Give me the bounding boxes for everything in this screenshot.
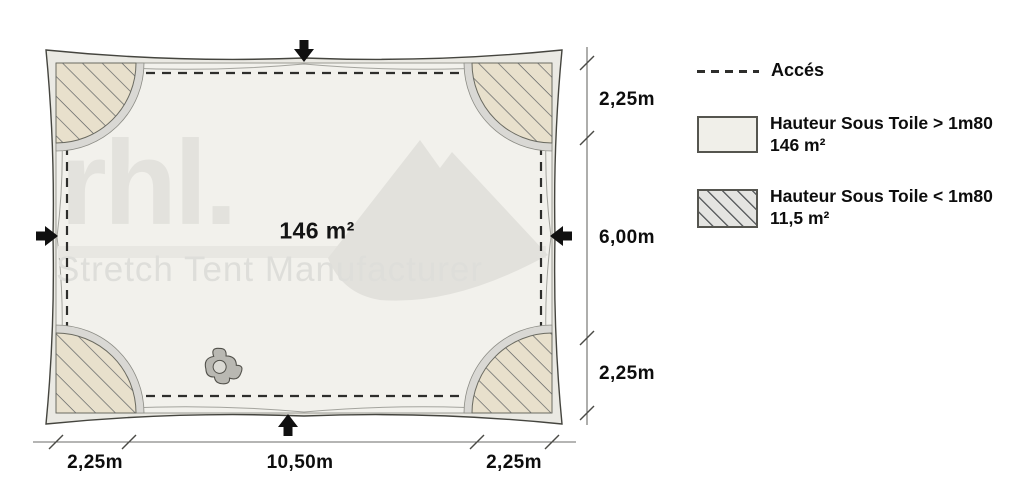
legend-under-1m80-text: Hauteur Sous Toile < 1m80 11,5 m²	[770, 185, 993, 229]
legend-over-1m80-text: Hauteur Sous Toile > 1m80 146 m²	[770, 112, 993, 156]
legend-under-1m80-line1: Hauteur Sous Toile < 1m80	[770, 185, 993, 207]
legend-over-1m80-line2: 146 m²	[770, 134, 993, 156]
dim-label-bottom-right: 2,25m	[486, 452, 542, 474]
tent-plan-drawing: rhl. Stretch Tent Manufacturer	[0, 0, 1024, 496]
legend-under-1m80-line2: 11,5 m²	[770, 207, 993, 229]
legend-over-1m80-line1: Hauteur Sous Toile > 1m80	[770, 112, 993, 134]
legend-access-label: Accés	[771, 59, 824, 81]
watermark-tagline: Stretch Tent Manufacturer	[56, 250, 483, 289]
dim-label-right-bottom: 2,25m	[599, 363, 655, 385]
dim-label-bottom-left: 2,25m	[67, 452, 123, 474]
dim-label-right-middle: 6,00m	[599, 227, 655, 249]
area-label: 146 m²	[279, 218, 354, 245]
legend-over-1m80-swatch	[697, 116, 758, 153]
legend-access-dash-sample	[697, 70, 759, 73]
dim-label-bottom-center: 10,50m	[267, 452, 334, 474]
entrance-arrow-bottom	[278, 414, 298, 436]
legend-under-1m80-swatch	[697, 189, 758, 228]
tent-plan-figure: rhl. Stretch Tent Manufacturer	[0, 0, 1024, 496]
dim-label-right-top: 2,25m	[599, 89, 655, 111]
